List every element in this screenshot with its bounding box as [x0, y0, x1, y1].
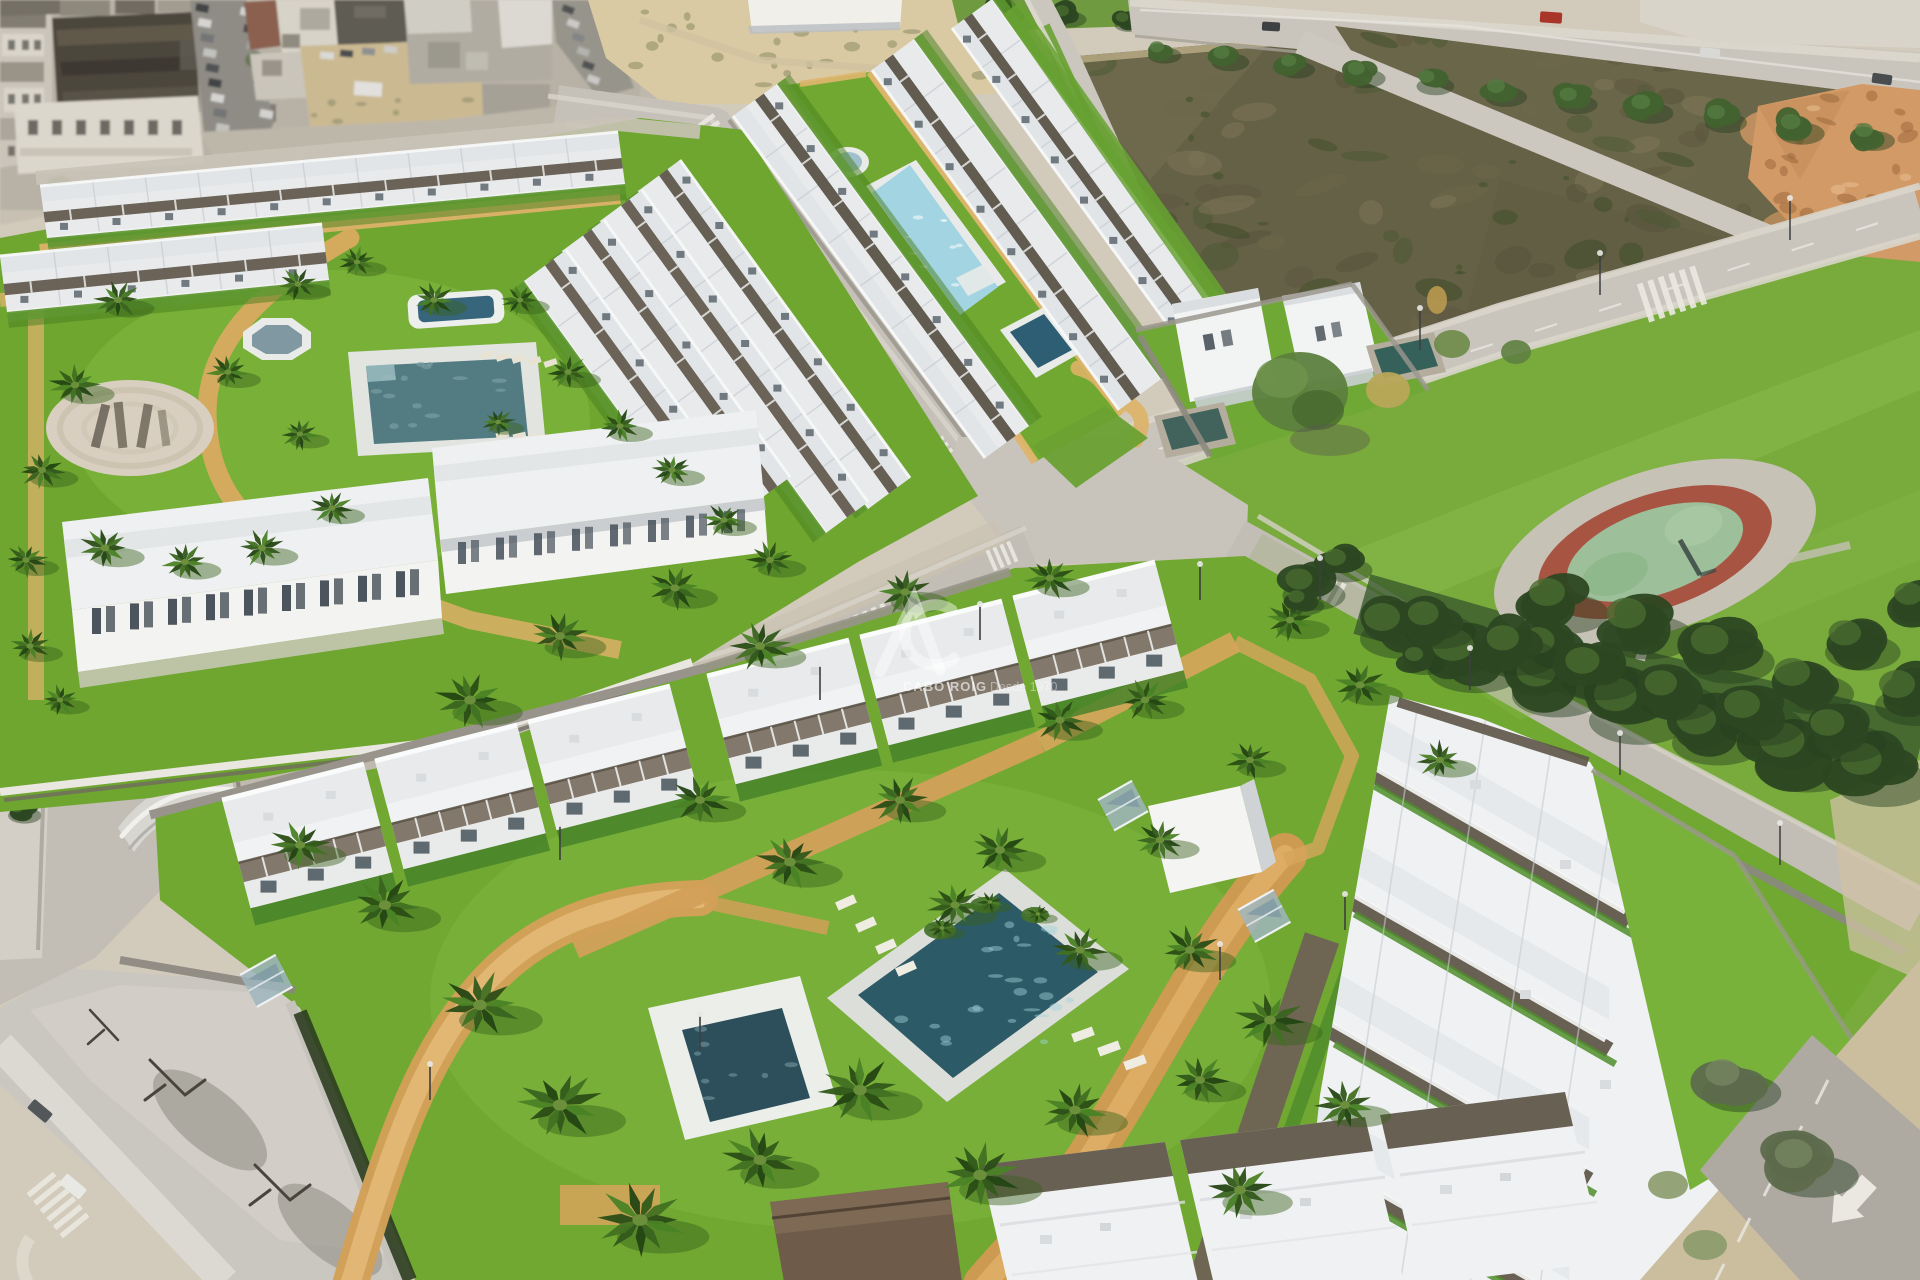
svg-text:Desde 1970: Desde 1970 [990, 680, 1057, 694]
svg-text:CABO ROIG: CABO ROIG [903, 679, 987, 694]
